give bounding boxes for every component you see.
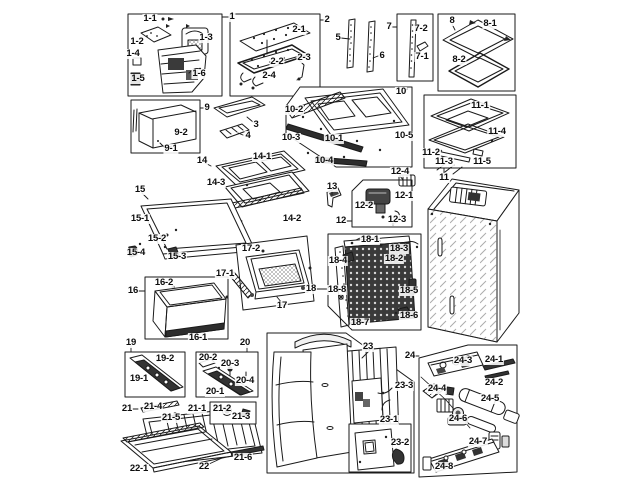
part-group-19 bbox=[125, 352, 185, 397]
part-group-10 bbox=[286, 87, 412, 167]
part-group-7 bbox=[397, 14, 433, 81]
parts-drawing bbox=[0, 0, 640, 480]
part-group-15 bbox=[128, 199, 254, 259]
part-group-21-22 bbox=[121, 401, 264, 472]
part-group-9 bbox=[131, 100, 200, 153]
part-group-12-13 bbox=[327, 175, 415, 227]
part-group-5-6 bbox=[347, 19, 375, 72]
part-group-17 bbox=[230, 236, 314, 310]
part-group-1 bbox=[128, 14, 222, 96]
part-group-3-4 bbox=[214, 97, 265, 138]
part-group-2 bbox=[230, 14, 320, 96]
part-group-16 bbox=[145, 277, 229, 339]
part-group-20 bbox=[196, 352, 258, 397]
cabinet-drawing bbox=[428, 163, 519, 342]
part-group-11 bbox=[424, 95, 516, 168]
part-group-23 bbox=[267, 333, 414, 473]
part-group-8 bbox=[438, 14, 515, 91]
parts-diagram-page: 11-11-21-31-41-51-622-12-22-32-45677-27-… bbox=[0, 0, 640, 480]
part-group-18 bbox=[328, 234, 421, 330]
part-group-24 bbox=[419, 345, 520, 477]
